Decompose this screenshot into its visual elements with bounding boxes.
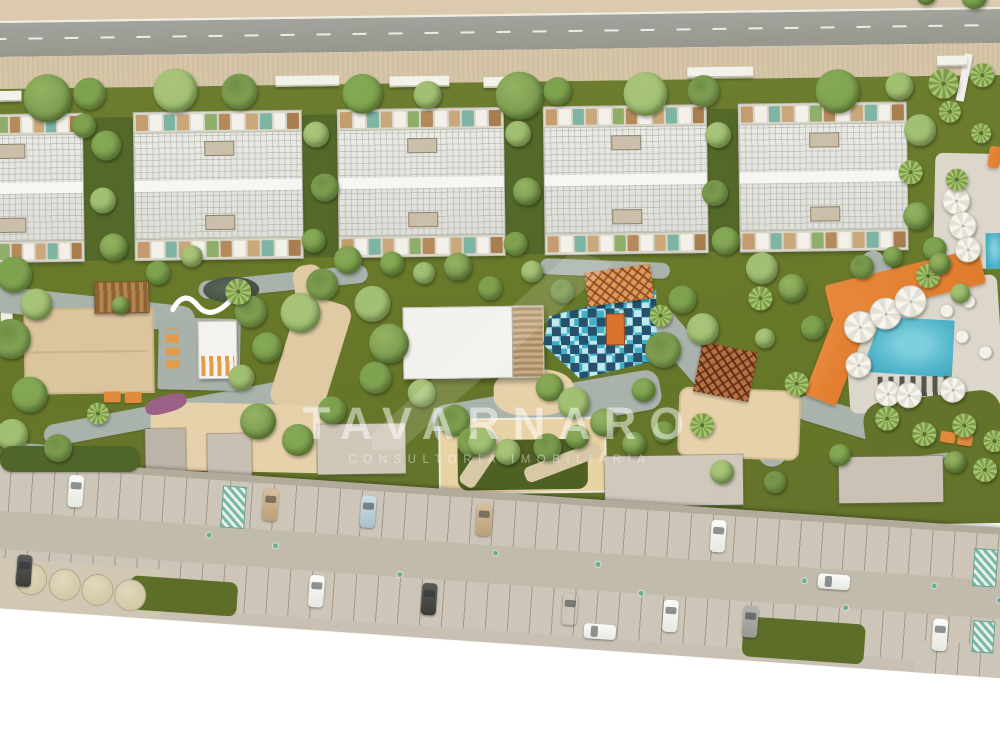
terrace-tile — [138, 242, 150, 258]
parked-car — [931, 618, 948, 651]
terrace-tile — [491, 237, 503, 253]
terrace-tile — [421, 111, 433, 127]
terrace-tile — [22, 117, 32, 133]
terrace-tile — [435, 111, 447, 127]
building-main-roof — [338, 129, 504, 236]
terrace-tile — [72, 243, 82, 259]
terrace-tile — [60, 243, 70, 259]
parked-car — [561, 592, 578, 625]
roof-vent — [612, 209, 642, 224]
play-tower — [606, 313, 625, 345]
terrace-tile — [260, 113, 272, 129]
terrace-tile — [369, 239, 381, 255]
parked-car — [421, 583, 438, 616]
terrace-tile — [408, 111, 420, 127]
roof-vent — [810, 206, 840, 221]
terrace-tile — [462, 110, 474, 126]
terrace-tile — [694, 234, 706, 250]
tree — [950, 283, 970, 303]
terrace-tile — [627, 235, 639, 251]
roof-center-band — [0, 181, 83, 194]
terrace-tile — [866, 232, 878, 248]
terrace-tile — [234, 241, 246, 257]
terrace-tile — [839, 232, 851, 248]
terrace-tile — [340, 112, 352, 128]
terrace-tile — [218, 114, 230, 130]
terrace-tile — [796, 106, 808, 122]
siteplan-render: TAVARNARO CONSULTORIA IMOBILIÁRIA — [0, 0, 1000, 747]
terrace-tile — [381, 111, 393, 127]
building-main-roof — [739, 123, 907, 230]
terrace-tile — [878, 105, 890, 121]
parked-car — [16, 554, 33, 587]
storage-hatch — [972, 548, 999, 588]
terrace-tile — [546, 109, 558, 125]
terrace-tile — [756, 233, 768, 249]
building-main-roof — [0, 135, 84, 242]
roof-center-band — [339, 175, 504, 188]
parked-car — [360, 495, 377, 528]
upper-orange-deck-sliver — [987, 145, 1000, 168]
building-main-roof — [134, 132, 302, 239]
terrace-tile — [666, 108, 678, 124]
terrace-tile — [743, 233, 755, 249]
terrace-tile — [601, 235, 613, 251]
terrace-tile — [248, 240, 260, 256]
orange-sunbed — [104, 391, 121, 402]
building-roof — [134, 111, 303, 260]
terrace-tile — [667, 235, 679, 251]
roof-vent — [205, 215, 235, 230]
terrace-tile — [692, 107, 704, 123]
terrace-tile — [0, 117, 8, 133]
terrace-tile — [394, 111, 406, 127]
palm-tree — [983, 430, 1000, 452]
terrace-tile — [150, 115, 162, 131]
terrace-tile — [572, 109, 584, 125]
terrace-tile — [768, 106, 780, 122]
terrace-tile — [614, 235, 626, 251]
roof-vent — [611, 135, 641, 150]
terrace-tile — [894, 231, 906, 247]
rooftop-terrace-strip — [136, 237, 303, 260]
terrace-tile — [811, 232, 823, 248]
orange-sunbed — [125, 392, 142, 403]
terrace-tile — [165, 242, 177, 258]
terrace-tile — [36, 243, 46, 259]
terrace-tile — [423, 238, 435, 254]
terrace-tile — [561, 236, 573, 252]
terrace-tile — [770, 233, 782, 249]
parked-car — [67, 475, 84, 508]
palm-tree — [939, 101, 961, 123]
terrace-tile — [353, 112, 365, 128]
terrace-tile — [476, 110, 488, 126]
terrace-tile — [48, 243, 58, 259]
patio-table — [978, 345, 992, 359]
rooftop-terrace-strip — [740, 228, 907, 251]
planter-wall — [937, 55, 967, 66]
roof-vent — [408, 212, 438, 227]
terrace-tile — [654, 235, 666, 251]
terrace-tile — [586, 109, 598, 125]
garage-lawn — [741, 616, 865, 664]
terrace-tile — [477, 237, 489, 253]
planter-wall — [0, 91, 22, 102]
terrace-tile — [681, 234, 693, 250]
terrace-tile — [205, 114, 217, 130]
terrace-tile — [163, 115, 175, 131]
terrace-tile — [450, 238, 462, 254]
terrace-tile — [448, 111, 460, 127]
terrace-tile — [220, 241, 232, 257]
parked-car — [662, 600, 679, 633]
terrace-tile — [489, 110, 501, 126]
terrace-tile — [825, 232, 837, 248]
upper-pool-corner — [986, 233, 1000, 269]
storage-hatch — [220, 485, 247, 529]
service-block — [839, 456, 944, 503]
terrace-tile — [588, 236, 600, 252]
terrace-tile — [782, 106, 794, 122]
parked-car — [817, 573, 850, 590]
terrace-tile — [464, 237, 476, 253]
rooftop-terrace-strip — [544, 105, 706, 128]
terrace-tile — [559, 109, 571, 125]
building-roof — [739, 102, 908, 251]
terrace-tile — [367, 112, 379, 128]
service-block — [207, 433, 252, 476]
terrace-tile — [24, 244, 34, 260]
rooftop-terrace-strip — [134, 111, 301, 134]
terrace-tile — [191, 114, 203, 130]
terrace-tile — [612, 108, 624, 124]
storage-hatch — [971, 620, 995, 653]
patio-table — [955, 329, 969, 343]
terrace-tile — [880, 232, 892, 248]
terrace-tile — [275, 240, 287, 256]
roof-vent — [0, 144, 25, 159]
terrace-tile — [679, 107, 691, 123]
roof-vent — [204, 141, 234, 156]
terrace-tile — [232, 114, 244, 130]
clubhouse-roof — [403, 305, 545, 379]
parked-car — [308, 575, 325, 608]
parked-car — [262, 488, 279, 521]
terrace-tile — [409, 238, 421, 254]
parked-car — [742, 605, 759, 638]
terrace-tile — [754, 106, 766, 122]
terrace-tile — [273, 113, 285, 129]
building-roof — [338, 108, 505, 257]
tree — [755, 328, 775, 348]
building-roof — [0, 114, 84, 263]
terrace-tile — [261, 240, 273, 256]
parked-car — [475, 503, 492, 536]
white-sculpture — [170, 292, 232, 319]
terrace-tile — [287, 113, 299, 129]
terrace-tile — [289, 240, 301, 256]
terrace-tile — [798, 233, 810, 249]
rust-lattice-pergola — [693, 342, 758, 402]
street-center-line — [0, 23, 1000, 40]
roof-vent — [809, 132, 839, 147]
terrace-tile — [10, 117, 20, 133]
roof-center-band — [740, 170, 907, 183]
terrace-tile — [809, 105, 821, 121]
terrace-tile — [151, 242, 163, 258]
parked-car — [710, 520, 727, 553]
roof-center-band — [545, 173, 707, 186]
terrace-tile — [853, 232, 865, 248]
terrace-tile — [784, 233, 796, 249]
terrace-tile — [599, 108, 611, 124]
roof-vent — [0, 218, 26, 233]
terrace-tile — [892, 104, 904, 120]
planter-wall — [275, 75, 339, 87]
terrace-tile — [574, 236, 586, 252]
terrace-tile — [437, 238, 449, 254]
service-block — [605, 455, 744, 507]
terrace-tile — [864, 105, 876, 121]
roof-vent — [407, 138, 437, 153]
building-roof — [544, 105, 708, 254]
terrace-tile — [246, 113, 258, 129]
terrace-tile — [741, 106, 753, 122]
rooftop-terrace-strip — [545, 231, 707, 254]
parked-car — [583, 623, 616, 640]
roof-center-band — [135, 178, 302, 191]
clubhouse-wood-deck — [512, 306, 544, 376]
terrace-tile — [641, 235, 653, 251]
sports-court — [23, 307, 154, 395]
building-main-roof — [544, 126, 707, 233]
terrace-tile — [548, 236, 560, 252]
terrace-tile — [136, 115, 148, 131]
rooftop-terrace-strip — [340, 234, 505, 257]
terrace-tile — [177, 114, 189, 130]
terrace-tile — [206, 241, 218, 257]
service-block — [317, 423, 406, 474]
orange-loungers — [166, 328, 180, 368]
